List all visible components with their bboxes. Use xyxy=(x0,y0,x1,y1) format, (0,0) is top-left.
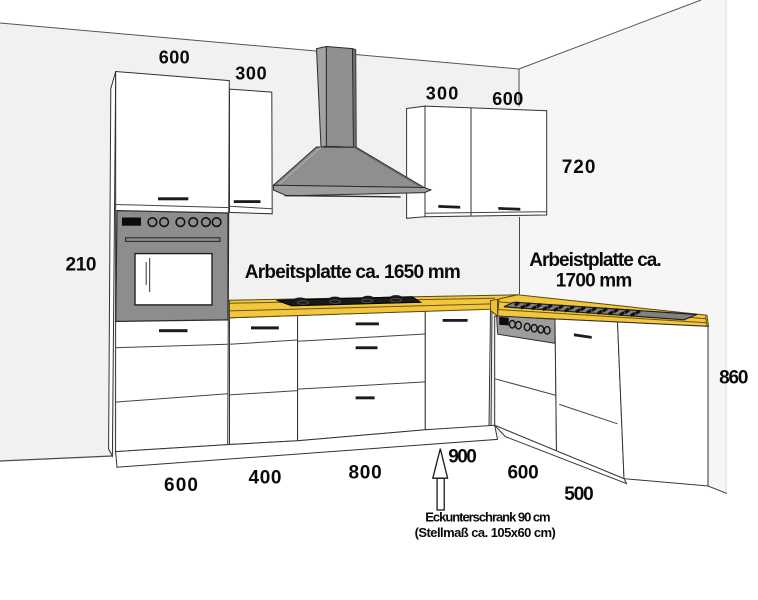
svg-text:600: 600 xyxy=(508,463,539,484)
svg-text:1700 mm: 1700 mm xyxy=(556,271,633,292)
svg-text:300: 300 xyxy=(426,84,459,104)
svg-text:210: 210 xyxy=(66,255,97,276)
svg-text:500: 500 xyxy=(564,484,593,505)
svg-text:(Stellmaß ca. 105x60 cm): (Stellmaß ca. 105x60 cm) xyxy=(415,525,556,540)
svg-text:300: 300 xyxy=(235,64,266,84)
svg-text:800: 800 xyxy=(349,463,382,484)
svg-text:600: 600 xyxy=(159,48,190,68)
svg-text:600: 600 xyxy=(492,89,523,109)
svg-text:Arbeistplatte ca.: Arbeistplatte ca. xyxy=(529,250,662,271)
svg-text:900: 900 xyxy=(448,447,477,468)
svg-text:860: 860 xyxy=(719,368,748,389)
svg-text:400: 400 xyxy=(249,468,282,489)
svg-text:600: 600 xyxy=(164,475,198,496)
svg-text:Eckunterschrank 90 cm: Eckunterschrank 90 cm xyxy=(425,510,550,525)
svg-text:720: 720 xyxy=(562,157,596,178)
svg-text:Arbeitsplatte ca. 1650 mm: Arbeitsplatte ca. 1650 mm xyxy=(245,262,461,283)
